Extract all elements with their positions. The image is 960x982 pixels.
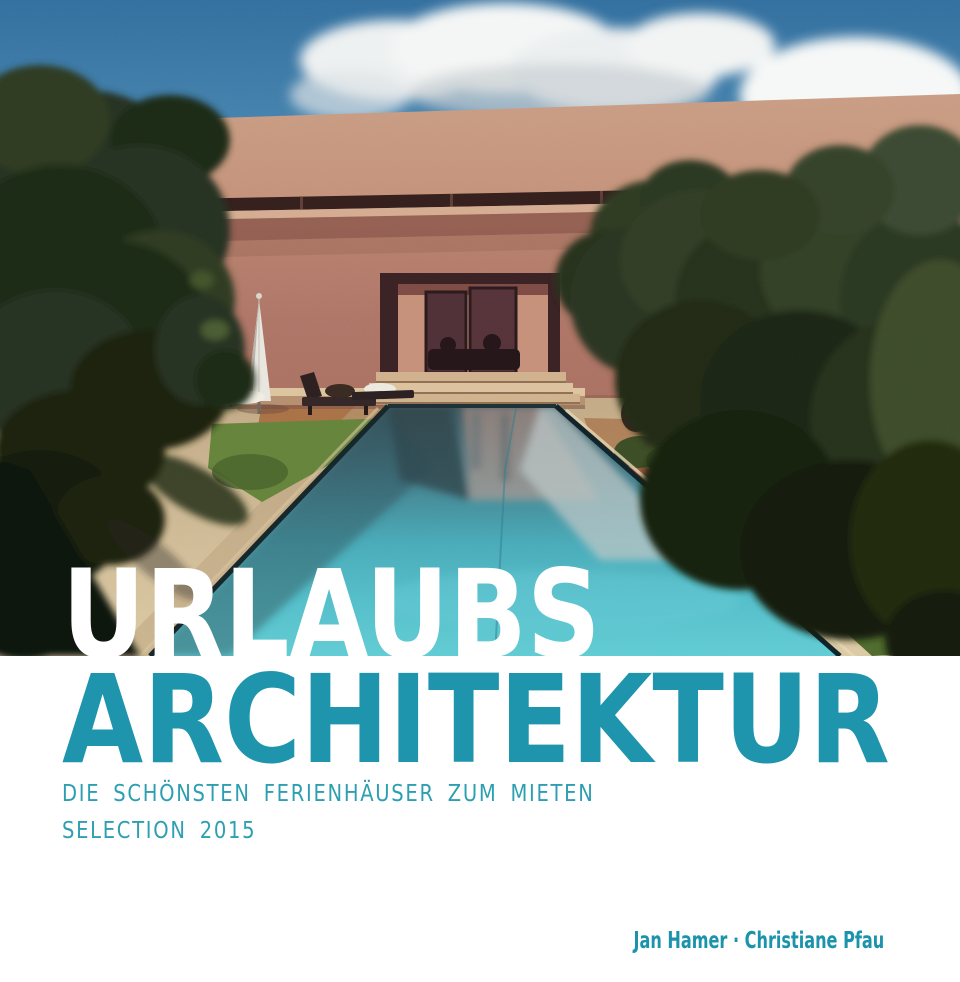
authors: Jan Hamer · Christiane Pfau — [633, 928, 884, 954]
book-cover: URLAUBS ARCHITEKTUR DIE SCHÖNSTEN FERIEN… — [0, 0, 960, 982]
edition-line: SELECTION 2015 — [62, 818, 256, 844]
subtitle: DIE SCHÖNSTEN FERIENHÄUSER ZUM MIETEN — [62, 781, 595, 807]
title-line-2: ARCHITEKTUR — [62, 659, 890, 781]
